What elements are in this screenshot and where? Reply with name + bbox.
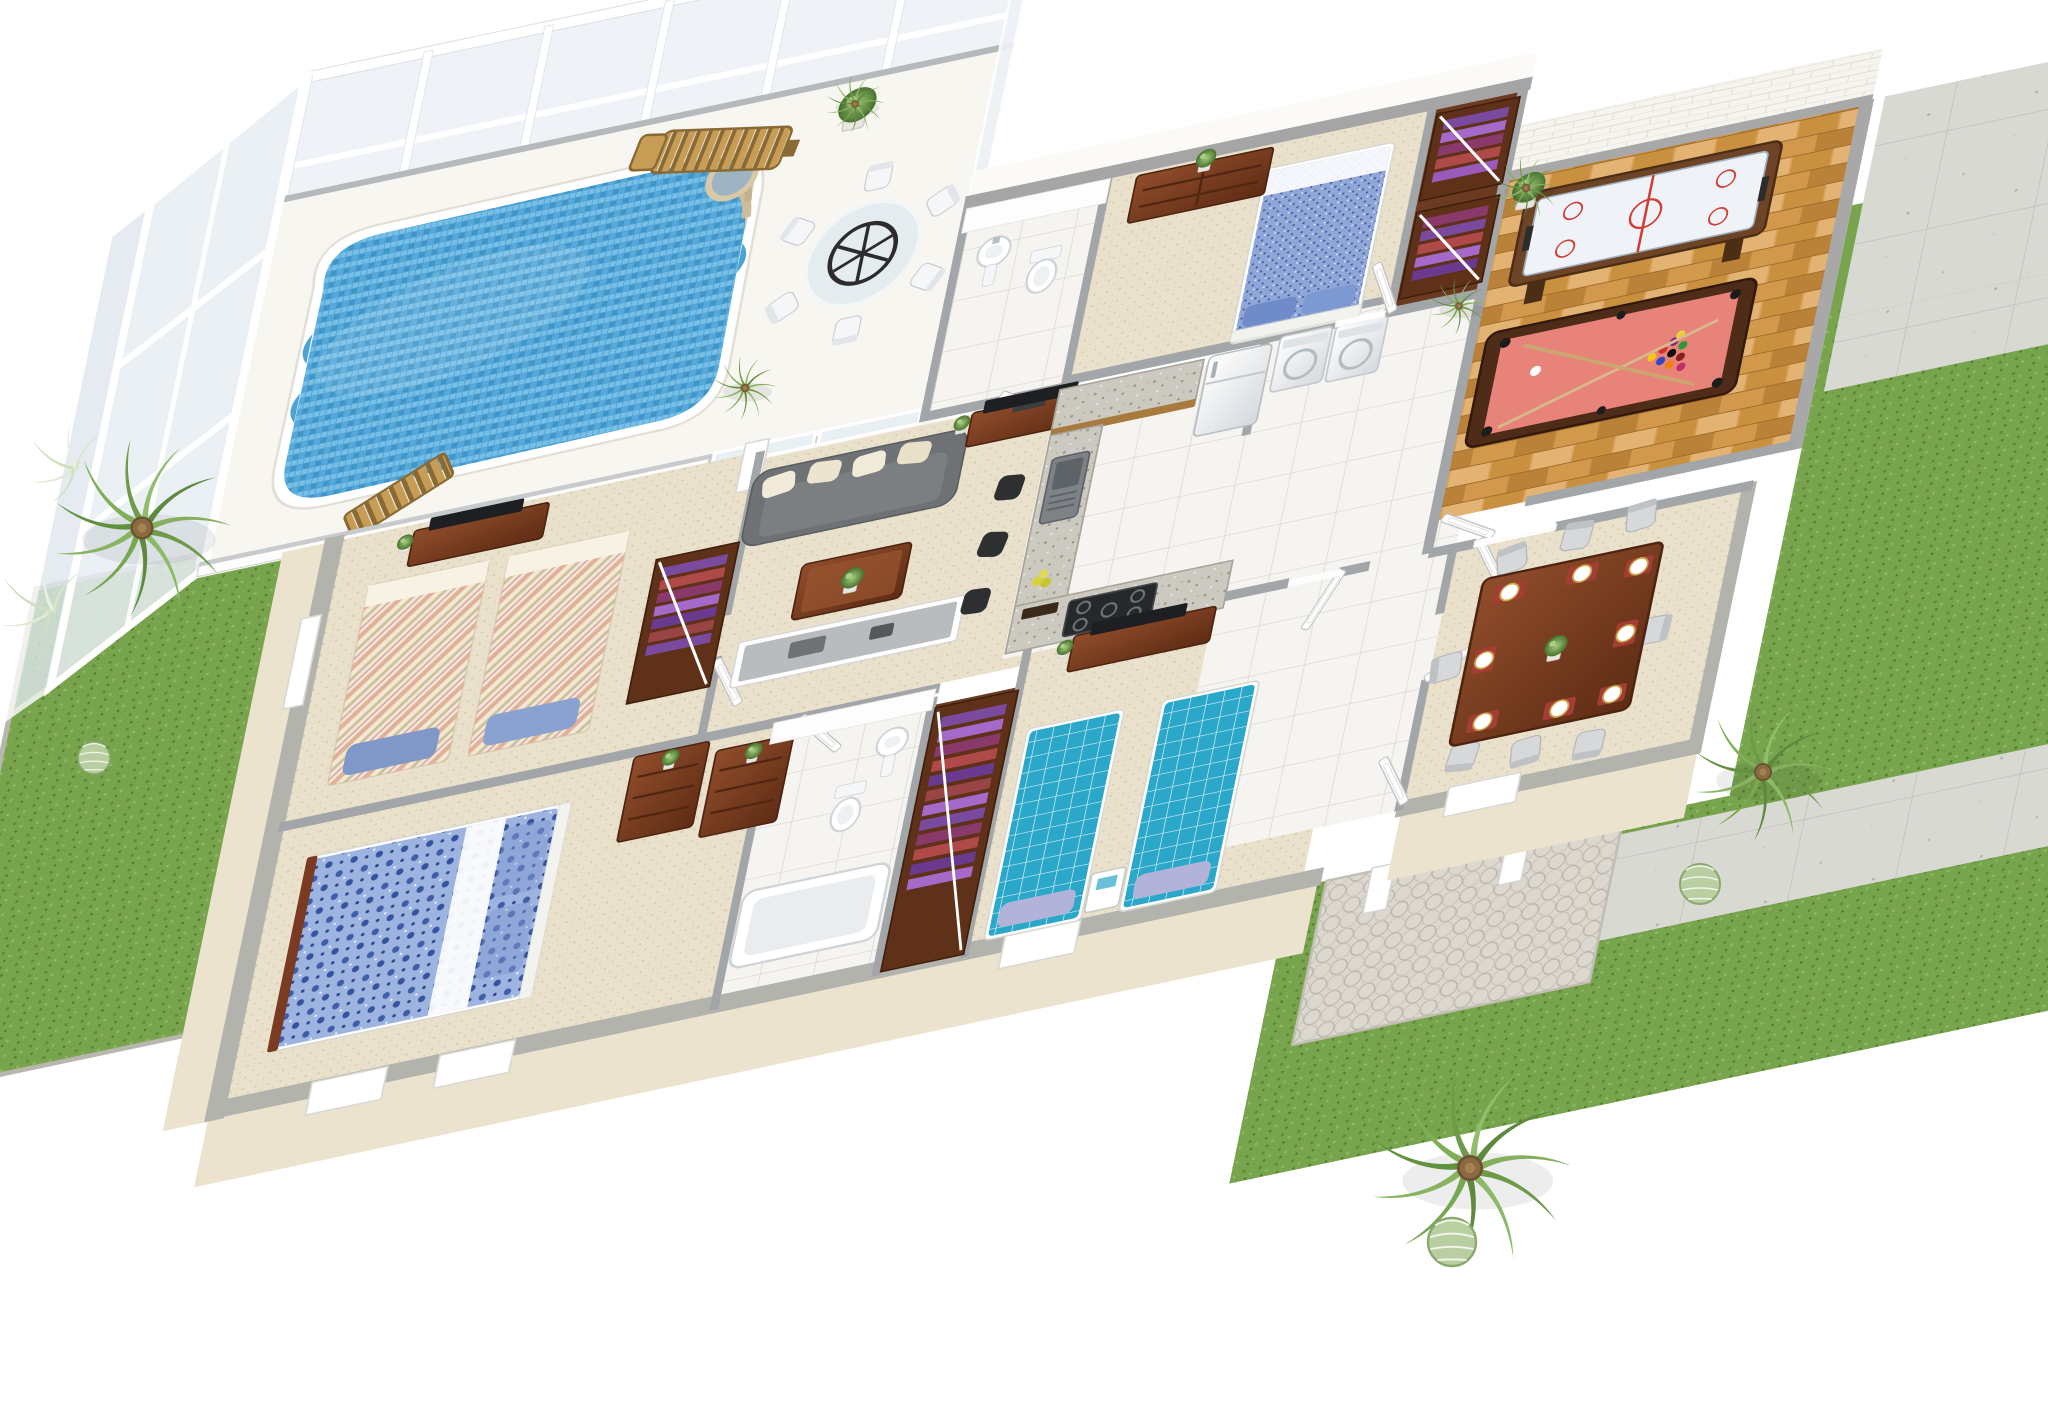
floorplan-render [0,0,2048,1427]
house-plan [0,0,2048,1427]
cactus-right-top [1680,864,1720,904]
cactus-bottom [1428,1218,1476,1266]
cactus-left [78,742,110,774]
floorplan-svg [0,0,2048,1427]
